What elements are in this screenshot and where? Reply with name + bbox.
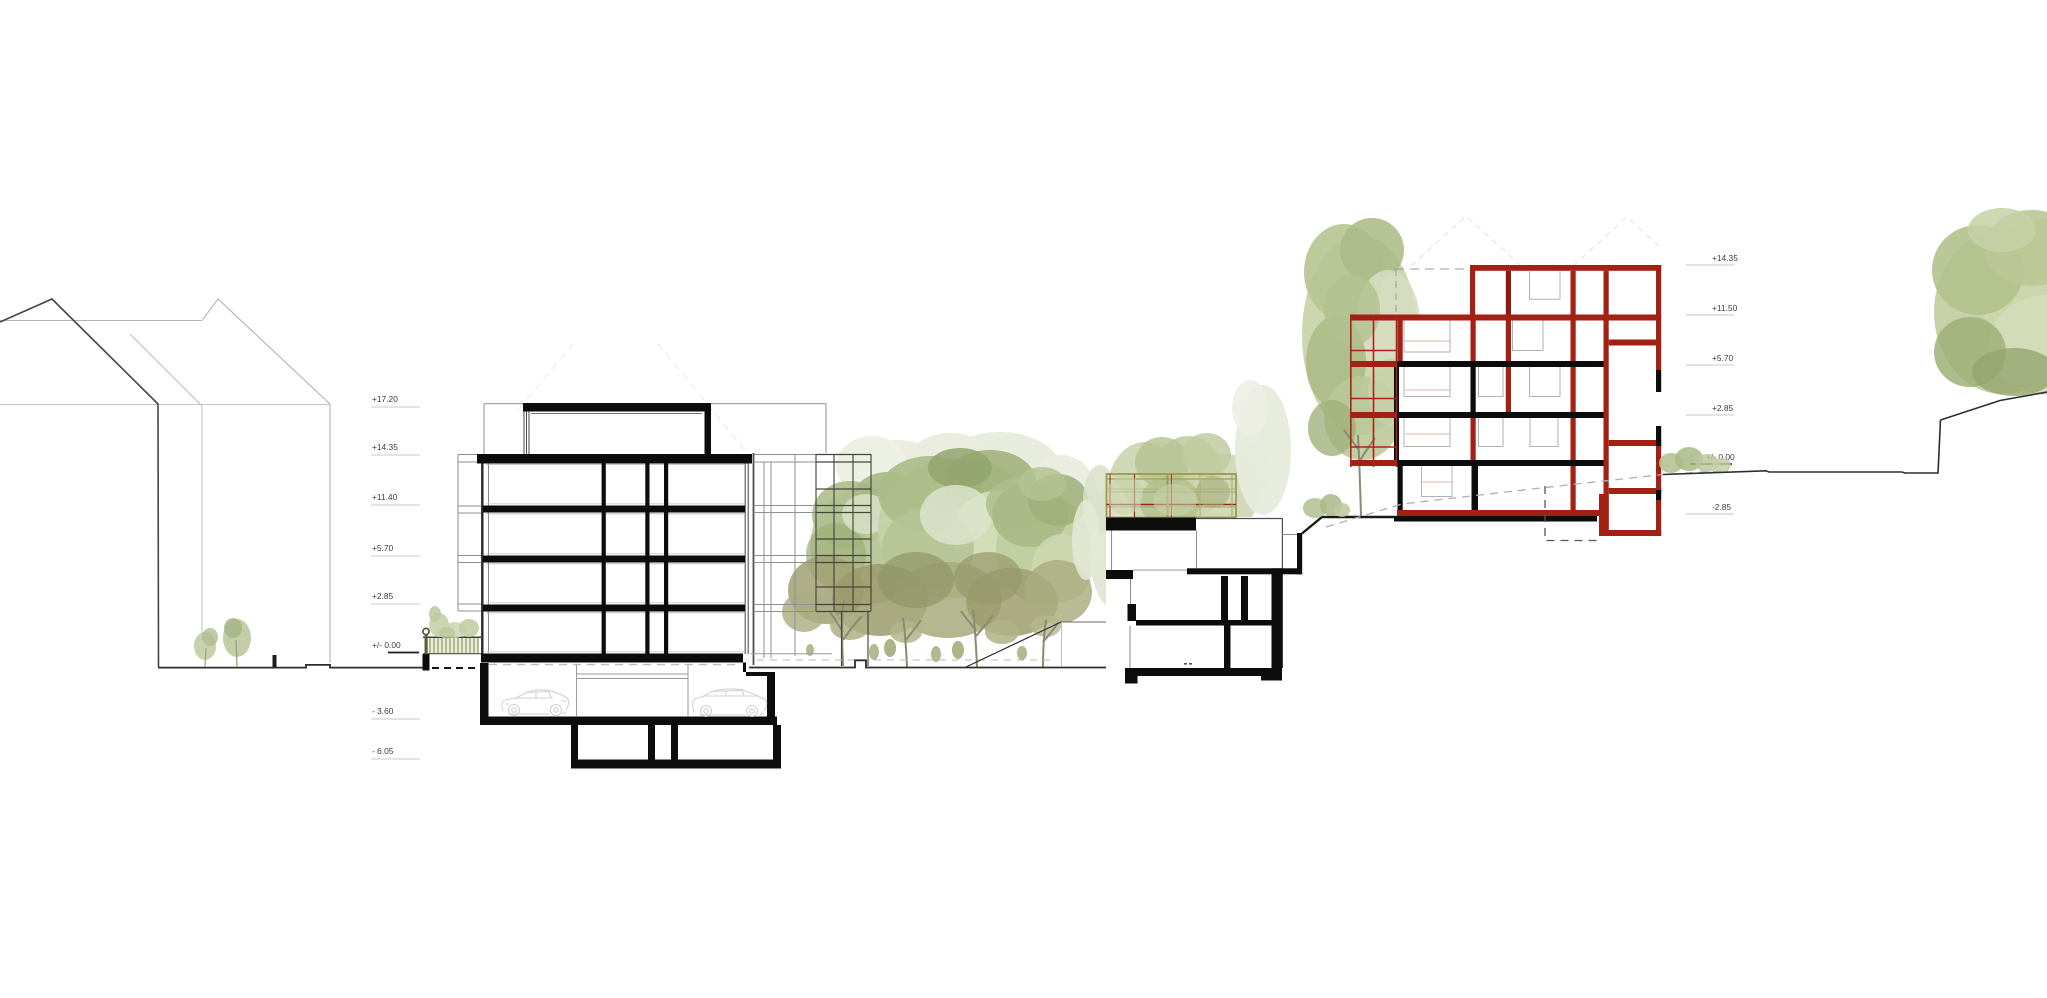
svg-text:+2.85: +2.85 bbox=[372, 591, 394, 601]
svg-text:+11.50: +11.50 bbox=[1712, 303, 1738, 313]
svg-text:+2.85: +2.85 bbox=[1712, 403, 1734, 413]
svg-text:- 3.60: - 3.60 bbox=[372, 706, 394, 716]
svg-text:+5.70: +5.70 bbox=[1712, 353, 1734, 363]
svg-text:+14.35: +14.35 bbox=[1712, 253, 1738, 263]
svg-text:-2.85: -2.85 bbox=[1712, 502, 1731, 512]
svg-text:+11.40: +11.40 bbox=[372, 492, 398, 502]
svg-text:+5.70: +5.70 bbox=[372, 543, 394, 553]
svg-text:- 6.05: - 6.05 bbox=[372, 746, 394, 756]
svg-text:+14.35: +14.35 bbox=[372, 442, 398, 452]
svg-text:+/- 0.00: +/- 0.00 bbox=[372, 640, 401, 650]
svg-text:+17.20: +17.20 bbox=[372, 394, 398, 404]
